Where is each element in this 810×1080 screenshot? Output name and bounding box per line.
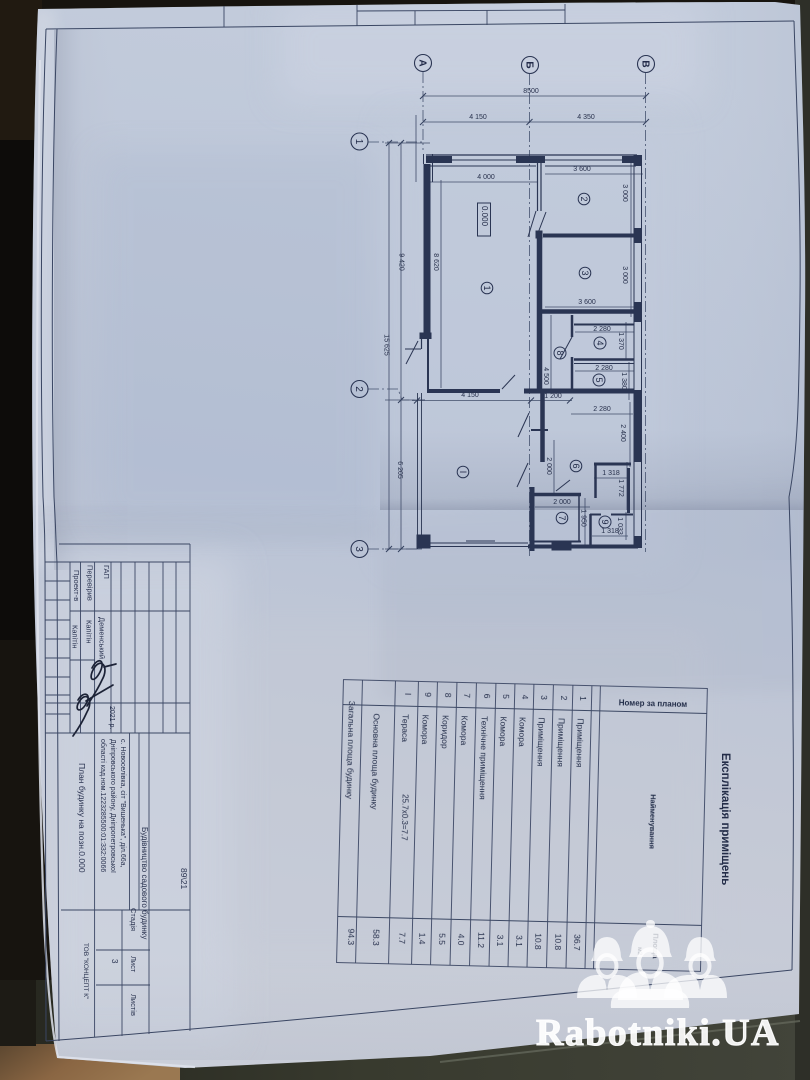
svg-text:4 150: 4 150 — [461, 392, 479, 399]
svg-text:9: 9 — [600, 519, 610, 524]
svg-text:3 600: 3 600 — [573, 166, 591, 173]
svg-text:с. Новоселівка, сіт "Вишенька": с. Новоселівка, сіт "Вишенька", діл.66а, — [119, 739, 127, 868]
svg-text:Лист: Лист — [129, 956, 138, 973]
svg-text:Приміщення: Приміщення — [574, 718, 585, 768]
svg-text:Комора: Комора — [420, 714, 431, 744]
svg-text:94.3: 94.3 — [346, 928, 356, 945]
svg-text:6: 6 — [482, 694, 492, 699]
svg-text:Приміщення: Приміщення — [535, 717, 546, 767]
svg-text:2 000: 2 000 — [545, 457, 552, 475]
svg-text:10.8: 10.8 — [533, 933, 543, 950]
svg-text:3.1: 3.1 — [495, 934, 505, 946]
svg-text:4 000: 4 000 — [477, 174, 495, 181]
svg-text:6 205: 6 205 — [396, 461, 403, 479]
svg-text:2 000: 2 000 — [553, 499, 571, 506]
svg-text:Перевірив: Перевірив — [86, 565, 95, 601]
svg-text:2 280: 2 280 — [593, 406, 611, 413]
svg-text:1.4: 1.4 — [417, 933, 427, 945]
svg-text:1 318: 1 318 — [602, 470, 620, 477]
svg-text:2 280: 2 280 — [595, 365, 613, 372]
svg-text:9: 9 — [423, 692, 433, 697]
svg-text:10.8: 10.8 — [553, 934, 563, 951]
svg-text:2: 2 — [353, 386, 364, 392]
svg-text:3 600: 3 600 — [578, 299, 596, 306]
svg-text:7: 7 — [462, 693, 472, 698]
svg-text:4.0: 4.0 — [456, 934, 466, 946]
svg-text:4: 4 — [595, 340, 605, 345]
svg-text:89\21: 89\21 — [179, 868, 189, 890]
svg-text:11.2: 11.2 — [476, 932, 486, 948]
svg-text:8 620: 8 620 — [432, 253, 439, 271]
svg-text:3: 3 — [580, 270, 590, 275]
svg-text:Комора: Комора — [517, 717, 528, 747]
svg-text:2: 2 — [579, 196, 589, 201]
svg-text:0.000: 0.000 — [480, 206, 489, 227]
svg-text:Дніпровського району, Дніпропе: Дніпровського району, Дніпропетровської — [109, 739, 117, 873]
svg-text:2 400: 2 400 — [619, 424, 626, 442]
svg-text:Б: Б — [524, 61, 535, 68]
svg-text:Будівництво садового будинку: Будівництво садового будинку — [140, 827, 149, 939]
svg-text:9 420: 9 420 — [398, 253, 405, 271]
svg-text:І: І — [403, 693, 413, 696]
svg-text:Капітін: Капітін — [85, 620, 94, 644]
svg-text:області кад.ном.1223285500:01:: області кад.ном.1223285500:01:332:0066 — [99, 739, 107, 872]
svg-text:І: І — [458, 471, 468, 474]
svg-text:В: В — [640, 60, 651, 67]
svg-text:Комора: Комора — [459, 715, 470, 745]
svg-text:ГАП: ГАП — [102, 565, 111, 579]
svg-text:1: 1 — [482, 285, 492, 290]
svg-text:7.7: 7.7 — [397, 932, 407, 944]
svg-text:4 500: 4 500 — [542, 367, 549, 385]
svg-text:Деменський: Деменський — [98, 617, 107, 659]
svg-text:Тераса: Тераса — [400, 714, 411, 742]
svg-text:А: А — [417, 59, 428, 66]
svg-text:1 950: 1 950 — [580, 509, 587, 527]
svg-text:2: 2 — [559, 696, 569, 701]
svg-text:1: 1 — [578, 696, 588, 701]
svg-text:3 000: 3 000 — [621, 184, 628, 202]
svg-text:5.5: 5.5 — [437, 933, 447, 945]
svg-text:Проект-в: Проект-в — [72, 570, 81, 601]
svg-text:Листів: Листів — [129, 994, 138, 1016]
svg-text:8: 8 — [555, 350, 565, 355]
svg-text:Rabotniki.UA: Rabotniki.UA — [536, 1012, 780, 1054]
svg-text:1 370: 1 370 — [617, 332, 624, 350]
svg-text:2 280: 2 280 — [593, 326, 611, 333]
svg-text:1 200: 1 200 — [544, 393, 562, 400]
svg-text:План будинку на позн.0.000: План будинку на позн.0.000 — [77, 763, 87, 873]
svg-text:36.7: 36.7 — [572, 934, 582, 951]
svg-text:4 150: 4 150 — [469, 114, 487, 121]
svg-text:5: 5 — [501, 694, 511, 699]
svg-text:Комора: Комора — [498, 716, 509, 746]
svg-text:15 625: 15 625 — [383, 334, 390, 356]
svg-text:2021 р.: 2021 р. — [108, 706, 115, 729]
svg-text:8: 8 — [443, 693, 453, 698]
svg-text:8500: 8500 — [523, 88, 539, 95]
svg-text:3 000: 3 000 — [621, 266, 628, 284]
svg-text:Експлікація приміщень: Експлікація приміщень — [719, 753, 731, 885]
svg-text:ТОВ "КОНЦЕПТ К": ТОВ "КОНЦЕПТ К" — [82, 943, 89, 1000]
svg-text:25.7х0.3=7.7: 25.7х0.3=7.7 — [400, 794, 410, 841]
svg-text:4 350: 4 350 — [577, 114, 595, 121]
svg-text:Приміщення: Приміщення — [555, 718, 566, 768]
svg-text:1 033: 1 033 — [616, 517, 623, 535]
svg-text:Номер за планом: Номер за планом — [619, 698, 688, 709]
svg-text:3: 3 — [110, 959, 119, 964]
svg-text:3: 3 — [539, 695, 549, 700]
svg-text:4: 4 — [520, 695, 530, 700]
svg-text:3: 3 — [353, 546, 364, 552]
svg-text:58.3: 58.3 — [371, 929, 381, 946]
svg-text:3.1: 3.1 — [514, 935, 524, 947]
svg-text:Капітін: Капітін — [71, 625, 80, 649]
svg-text:6: 6 — [571, 463, 581, 468]
svg-text:7: 7 — [557, 515, 567, 520]
svg-text:Стадія: Стадія — [129, 908, 138, 931]
svg-text:Коридор: Коридор — [440, 715, 451, 749]
svg-text:5: 5 — [594, 377, 604, 382]
svg-text:1: 1 — [353, 139, 364, 145]
svg-text:Технічне приміщення: Технічне приміщення — [478, 716, 490, 800]
svg-text:1 380: 1 380 — [620, 372, 627, 390]
svg-text:Найменування: Найменування — [647, 794, 657, 849]
svg-text:1 772: 1 772 — [617, 479, 624, 497]
